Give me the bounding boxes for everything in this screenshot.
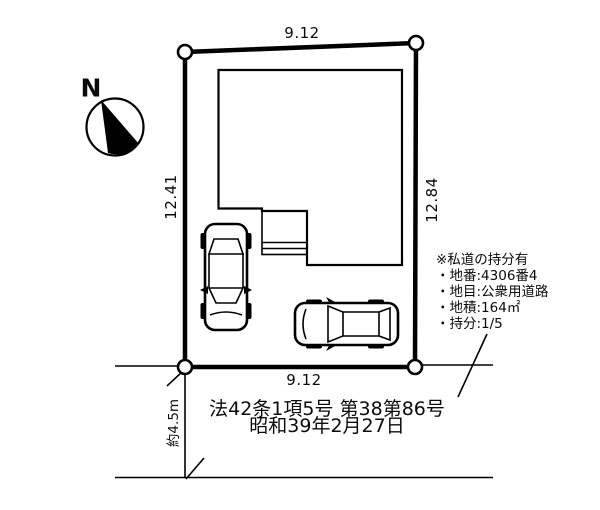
private-road-note-lot-number: ・地番:4306番4: [436, 268, 549, 284]
corner-marker-bottom-left: [178, 360, 192, 374]
road-width-label: 約4.5m: [162, 399, 182, 447]
site-plan-diagram: N 9.12 9.12 12.41 12.84 約4.5m ※私道の持分有 ・地…: [0, 0, 600, 510]
north-label: N: [81, 74, 102, 103]
private-road-note-land-category: ・地目:公衆用道路: [436, 284, 549, 300]
car-top-view-vertical: [200, 224, 252, 330]
legal-designation-line2: 昭和39年2月27日: [209, 418, 445, 435]
legal-designation: 法42条1項5号 第38第86号 昭和39年2月27日: [209, 401, 445, 435]
corner-marker-top-right: [409, 36, 423, 50]
corner-marker-top-left: [178, 45, 192, 59]
dimension-left: 12.41: [162, 174, 180, 219]
private-road-note: ※私道の持分有 ・地番:4306番4 ・地目:公衆用道路 ・地積:164㎡ ・持…: [436, 252, 549, 332]
dimension-top: 9.12: [284, 24, 319, 42]
north-compass-icon: [87, 99, 144, 156]
private-road-note-land-area: ・地積:164㎡: [436, 300, 549, 316]
private-road-note-title: ※私道の持分有: [436, 252, 549, 268]
dimension-right: 12.84: [423, 177, 441, 222]
car-top-view-horizontal: [295, 297, 398, 351]
dimension-bottom: 9.12: [286, 371, 321, 389]
private-road-note-share: ・持分:1/5: [436, 316, 549, 332]
corner-marker-bottom-right: [408, 360, 422, 374]
tick-mark-bottom: [186, 458, 204, 479]
